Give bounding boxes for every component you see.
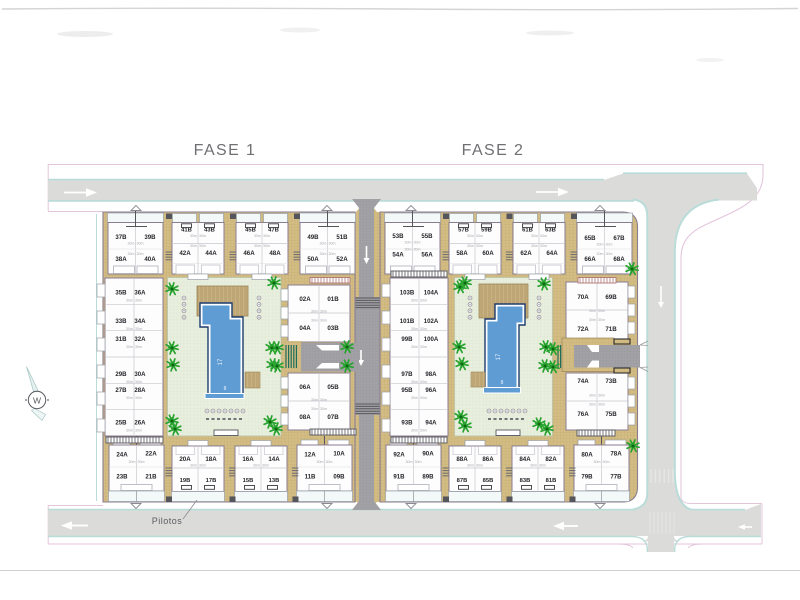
svg-text:51B: 51B — [336, 234, 348, 241]
svg-text:30m: 30m — [414, 241, 421, 245]
svg-text:34A: 34A — [134, 318, 146, 325]
svg-text:30m: 30m — [603, 460, 610, 464]
svg-text:95B: 95B — [401, 387, 413, 394]
svg-text:17: 17 — [218, 358, 224, 365]
svg-text:30m: 30m — [411, 327, 418, 331]
svg-text:50A: 50A — [307, 256, 319, 263]
svg-text:64A: 64A — [546, 250, 558, 257]
svg-text:89B: 89B — [422, 474, 434, 481]
svg-text:20A: 20A — [179, 456, 191, 463]
svg-text:30m: 30m — [589, 318, 596, 322]
svg-text:03B: 03B — [327, 325, 339, 332]
svg-text:30m: 30m — [540, 244, 547, 248]
svg-text:30m: 30m — [476, 234, 483, 238]
svg-text:79B: 79B — [581, 474, 593, 481]
svg-text:84A: 84A — [519, 456, 531, 463]
svg-text:30m: 30m — [540, 234, 547, 238]
svg-text:30m: 30m — [329, 242, 336, 246]
svg-text:30m: 30m — [190, 464, 197, 468]
svg-text:15B: 15B — [243, 478, 254, 484]
svg-text:30m: 30m — [254, 234, 261, 238]
svg-text:30m: 30m — [597, 252, 604, 256]
svg-text:30m: 30m — [126, 299, 133, 303]
svg-text:30m: 30m — [317, 460, 324, 464]
svg-text:30m: 30m — [320, 310, 327, 314]
svg-text:30m: 30m — [135, 429, 142, 433]
svg-text:22A: 22A — [145, 451, 157, 458]
svg-text:04A: 04A — [299, 325, 311, 332]
svg-text:30m: 30m — [420, 396, 427, 400]
svg-text:100A: 100A — [424, 336, 439, 343]
svg-text:06A: 06A — [299, 384, 311, 391]
svg-text:30m: 30m — [531, 244, 538, 248]
svg-text:30m: 30m — [530, 464, 537, 468]
svg-text:30m: 30m — [411, 396, 418, 400]
svg-text:30m: 30m — [598, 318, 605, 322]
svg-text:54A: 54A — [392, 252, 404, 259]
svg-text:37B: 37B — [115, 234, 127, 241]
svg-text:26A: 26A — [134, 420, 146, 427]
svg-text:63B: 63B — [545, 228, 556, 234]
svg-text:78A: 78A — [610, 451, 622, 458]
svg-text:30m: 30m — [594, 460, 601, 464]
svg-text:30m: 30m — [411, 429, 418, 433]
svg-text:30m: 30m — [135, 396, 142, 400]
svg-text:30m: 30m — [411, 345, 418, 349]
svg-text:30m: 30m — [411, 380, 418, 384]
svg-text:27B: 27B — [115, 387, 127, 394]
svg-text:30m: 30m — [598, 394, 605, 398]
svg-text:30m: 30m — [137, 242, 144, 246]
svg-text:62A: 62A — [520, 250, 532, 257]
svg-text:30m: 30m — [199, 464, 206, 468]
svg-text:42A: 42A — [179, 250, 191, 257]
svg-text:30m: 30m — [415, 460, 422, 464]
svg-text:88A: 88A — [456, 456, 468, 463]
svg-text:01B: 01B — [327, 296, 339, 303]
svg-text:55B: 55B — [421, 233, 433, 240]
svg-text:W: W — [33, 396, 41, 406]
svg-text:FASE 1: FASE 1 — [194, 142, 257, 159]
svg-text:29B: 29B — [115, 371, 127, 378]
svg-text:13B: 13B — [269, 478, 280, 484]
svg-text:30m: 30m — [262, 464, 269, 468]
svg-text:41B: 41B — [181, 228, 192, 234]
svg-text:31B: 31B — [115, 336, 127, 343]
svg-text:73B: 73B — [605, 378, 617, 385]
svg-text:36A: 36A — [134, 290, 146, 297]
svg-text:92A: 92A — [393, 452, 405, 459]
svg-text:30m: 30m — [320, 319, 327, 323]
svg-text:30m: 30m — [190, 234, 197, 238]
svg-text:58A: 58A — [456, 250, 468, 257]
svg-text:30m: 30m — [138, 460, 145, 464]
svg-text:68A: 68A — [613, 256, 625, 263]
svg-text:49B: 49B — [307, 234, 319, 241]
svg-text:11B: 11B — [305, 474, 316, 481]
svg-text:30m: 30m — [126, 345, 133, 349]
svg-text:30m: 30m — [311, 310, 318, 314]
svg-text:30m: 30m — [126, 327, 133, 331]
svg-text:28A: 28A — [134, 387, 146, 394]
svg-text:91B: 91B — [393, 474, 405, 481]
svg-text:83B: 83B — [520, 478, 531, 484]
svg-text:39B: 39B — [144, 234, 156, 241]
svg-text:Pilotos: Pilotos — [152, 516, 183, 526]
svg-text:30m: 30m — [606, 243, 613, 247]
svg-text:30m: 30m — [597, 243, 604, 247]
svg-text:21B: 21B — [145, 474, 157, 481]
svg-text:103B: 103B — [400, 290, 415, 297]
svg-text:30m: 30m — [414, 248, 421, 252]
svg-text:12A: 12A — [304, 452, 316, 459]
svg-text:8: 8 — [224, 386, 227, 392]
svg-text:66A: 66A — [584, 256, 596, 263]
svg-text:30m: 30m — [476, 464, 483, 468]
svg-text:30m: 30m — [311, 398, 318, 402]
svg-text:82A: 82A — [545, 456, 557, 463]
svg-text:30m: 30m — [476, 244, 483, 248]
svg-text:38A: 38A — [115, 256, 127, 263]
svg-text:43B: 43B — [204, 228, 215, 234]
svg-text:30m: 30m — [420, 299, 427, 303]
svg-text:30m: 30m — [135, 299, 142, 303]
svg-text:30A: 30A — [134, 371, 146, 378]
svg-text:97B: 97B — [401, 371, 413, 378]
svg-text:10A: 10A — [333, 451, 345, 458]
svg-text:30m: 30m — [420, 429, 427, 433]
svg-text:FASE 2: FASE 2 — [462, 142, 525, 159]
svg-text:30m: 30m — [263, 234, 270, 238]
svg-text:30m: 30m — [320, 407, 327, 411]
svg-text:76A: 76A — [577, 411, 589, 418]
svg-text:30m: 30m — [420, 380, 427, 384]
svg-text:77B: 77B — [610, 474, 622, 481]
svg-text:52A: 52A — [336, 256, 348, 263]
svg-text:30m: 30m — [253, 464, 260, 468]
svg-text:30m: 30m — [254, 244, 261, 248]
svg-text:74A: 74A — [577, 378, 589, 385]
svg-text:75B: 75B — [605, 411, 617, 418]
svg-text:30m: 30m — [406, 460, 413, 464]
svg-text:8: 8 — [501, 380, 504, 386]
svg-text:30m: 30m — [589, 309, 596, 313]
svg-text:33B: 33B — [115, 318, 127, 325]
svg-text:30m: 30m — [199, 234, 206, 238]
svg-text:30m: 30m — [126, 396, 133, 400]
svg-text:44A: 44A — [205, 250, 217, 257]
svg-text:30m: 30m — [411, 299, 418, 303]
svg-text:02A: 02A — [299, 296, 311, 303]
svg-text:45B: 45B — [245, 228, 256, 234]
svg-text:87B: 87B — [457, 478, 468, 484]
svg-text:96A: 96A — [425, 387, 437, 394]
svg-text:17B: 17B — [206, 478, 217, 484]
svg-text:30m: 30m — [420, 327, 427, 331]
svg-text:71B: 71B — [605, 326, 617, 333]
svg-text:30m: 30m — [420, 345, 427, 349]
svg-text:16A: 16A — [242, 456, 254, 463]
svg-text:46A: 46A — [243, 250, 255, 257]
svg-text:104A: 104A — [424, 290, 439, 297]
svg-text:93B: 93B — [401, 420, 413, 427]
svg-text:30m: 30m — [135, 345, 142, 349]
svg-text:30m: 30m — [589, 394, 596, 398]
svg-text:70A: 70A — [577, 294, 589, 301]
svg-text:99B: 99B — [401, 336, 413, 343]
svg-text:86A: 86A — [482, 456, 494, 463]
svg-text:90A: 90A — [422, 451, 434, 458]
svg-text:30m: 30m — [128, 252, 135, 256]
svg-text:07B: 07B — [327, 414, 339, 421]
svg-text:30m: 30m — [263, 244, 270, 248]
svg-text:67B: 67B — [613, 235, 625, 242]
svg-text:24A: 24A — [116, 452, 128, 459]
svg-text:08A: 08A — [299, 414, 311, 421]
svg-text:30m: 30m — [467, 464, 474, 468]
svg-text:69B: 69B — [605, 294, 617, 301]
svg-text:19B: 19B — [180, 478, 191, 484]
svg-text:30m: 30m — [190, 244, 197, 248]
svg-text:30m: 30m — [320, 398, 327, 402]
svg-text:72A: 72A — [577, 326, 589, 333]
svg-text:48A: 48A — [269, 250, 281, 257]
svg-text:30m: 30m — [405, 248, 412, 252]
svg-text:30m: 30m — [606, 252, 613, 256]
svg-text:65B: 65B — [584, 235, 596, 242]
svg-text:60A: 60A — [482, 250, 494, 257]
svg-text:47B: 47B — [268, 228, 279, 234]
svg-text:85B: 85B — [483, 478, 494, 484]
svg-text:30m: 30m — [598, 309, 605, 313]
svg-text:81B: 81B — [546, 478, 557, 484]
svg-text:30m: 30m — [467, 234, 474, 238]
svg-text:53B: 53B — [392, 233, 404, 240]
svg-text:30m: 30m — [129, 460, 136, 464]
svg-text:40A: 40A — [144, 256, 156, 263]
svg-text:30m: 30m — [539, 464, 546, 468]
svg-text:30m: 30m — [126, 380, 133, 384]
svg-text:94A: 94A — [425, 420, 437, 427]
svg-text:30m: 30m — [329, 252, 336, 256]
svg-text:30m: 30m — [326, 460, 333, 464]
svg-text:17: 17 — [496, 353, 502, 360]
svg-text:30m: 30m — [405, 241, 412, 245]
svg-text:30m: 30m — [598, 403, 605, 407]
svg-text:32A: 32A — [134, 336, 146, 343]
svg-text:30m: 30m — [135, 327, 142, 331]
svg-text:80A: 80A — [581, 452, 593, 459]
svg-text:57B: 57B — [458, 228, 469, 234]
svg-text:56A: 56A — [421, 252, 433, 259]
svg-text:14A: 14A — [268, 456, 280, 463]
svg-text:18A: 18A — [205, 456, 217, 463]
svg-text:30m: 30m — [135, 380, 142, 384]
svg-text:61B: 61B — [522, 228, 533, 234]
svg-text:05B: 05B — [327, 384, 339, 391]
svg-text:102A: 102A — [424, 318, 439, 325]
svg-text:30m: 30m — [137, 252, 144, 256]
svg-text:98A: 98A — [425, 371, 437, 378]
svg-text:30m: 30m — [320, 252, 327, 256]
svg-text:35B: 35B — [115, 290, 127, 297]
svg-text:30m: 30m — [589, 403, 596, 407]
svg-text:30m: 30m — [531, 234, 538, 238]
svg-text:30m: 30m — [320, 242, 327, 246]
svg-text:23B: 23B — [116, 474, 128, 481]
svg-text:59B: 59B — [481, 228, 492, 234]
svg-text:30m: 30m — [311, 319, 318, 323]
svg-text:101B: 101B — [400, 318, 415, 325]
svg-text:30m: 30m — [311, 407, 318, 411]
svg-text:30m: 30m — [128, 242, 135, 246]
svg-text:30m: 30m — [467, 244, 474, 248]
svg-text:30m: 30m — [126, 429, 133, 433]
svg-text:25B: 25B — [115, 420, 127, 427]
svg-text:30m: 30m — [199, 244, 206, 248]
svg-text:09B: 09B — [333, 474, 345, 481]
